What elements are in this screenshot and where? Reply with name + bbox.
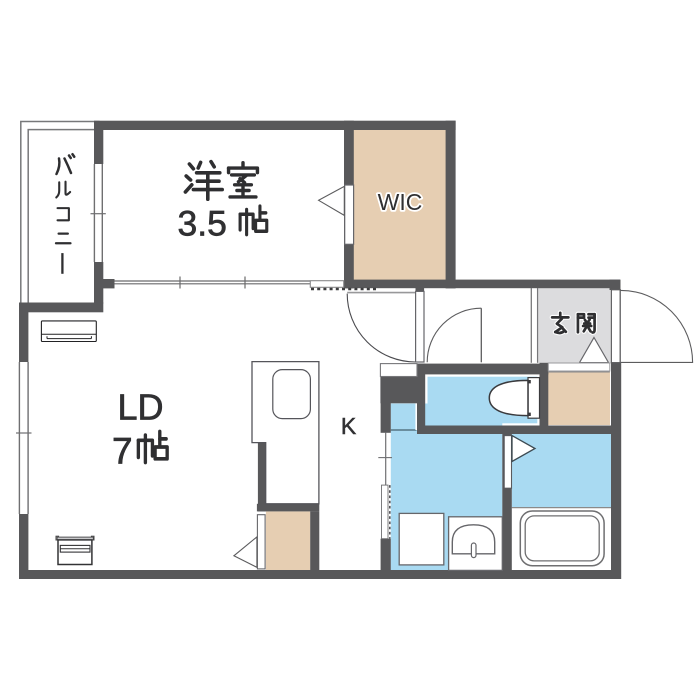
svg-text:LD: LD: [117, 387, 163, 428]
svg-text:WIC: WIC: [378, 189, 423, 215]
svg-text:7: 7: [112, 431, 133, 472]
svg-text:K: K: [341, 413, 357, 439]
svg-text:3.5: 3.5: [178, 203, 227, 243]
